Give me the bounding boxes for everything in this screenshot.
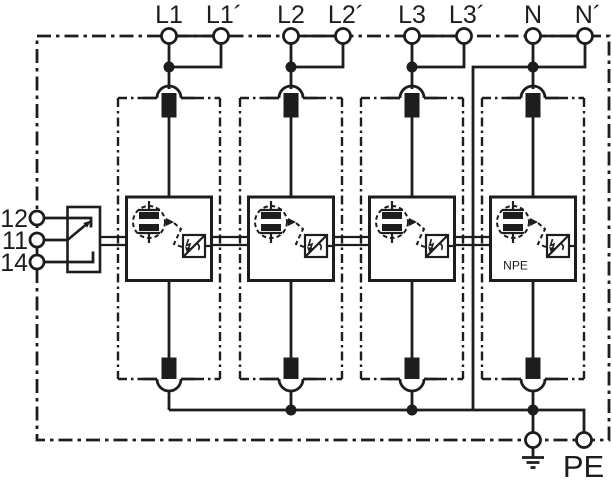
terminal-label-14: 14	[0, 249, 28, 277]
terminal-label-l3: L3	[398, 1, 426, 29]
terminal-l3-prime	[457, 29, 472, 44]
terminal-n-prime	[578, 29, 593, 44]
junction-dot	[286, 405, 297, 416]
terminal-label-l2-prime: L2´	[328, 1, 364, 29]
terminal-label-l3-prime: L3´	[449, 1, 485, 29]
terminal-l2	[284, 29, 299, 44]
terminal-l2-prime	[336, 29, 351, 44]
junction-dot	[286, 62, 297, 73]
terminal-label-n-prime: N´	[575, 1, 601, 29]
diagram-canvas: L1 L1´ L2 L2´ L3 L3´ N N´ 12 11 14 NPE P…	[0, 0, 612, 480]
terminal-11	[30, 233, 44, 247]
terminal-l1	[162, 29, 177, 44]
terminal-label-l1: L1	[155, 1, 183, 29]
terminal-label-l1-prime: L1´	[206, 1, 242, 29]
junction-dot	[528, 405, 539, 416]
junction-dot	[407, 62, 418, 73]
terminal-label-n: N	[524, 1, 542, 29]
pe-terminal-label: PE	[563, 449, 604, 480]
wiring-diagram: L1 L1´ L2 L2´ L3 L3´ N N´ 12 11 14 NPE P…	[0, 0, 612, 480]
junction-dot	[407, 405, 418, 416]
npe-module-label: NPE	[503, 259, 528, 273]
terminal-l1-prime	[214, 29, 229, 44]
junction-dot	[528, 62, 539, 73]
terminal-14	[30, 255, 44, 269]
terminal-pe	[577, 433, 592, 448]
terminal-n	[526, 29, 541, 44]
terminal-earth	[526, 433, 541, 448]
terminal-12	[30, 211, 44, 225]
terminal-l3	[405, 29, 420, 44]
terminal-label-l2: L2	[277, 1, 305, 29]
junction-dot	[164, 62, 175, 73]
